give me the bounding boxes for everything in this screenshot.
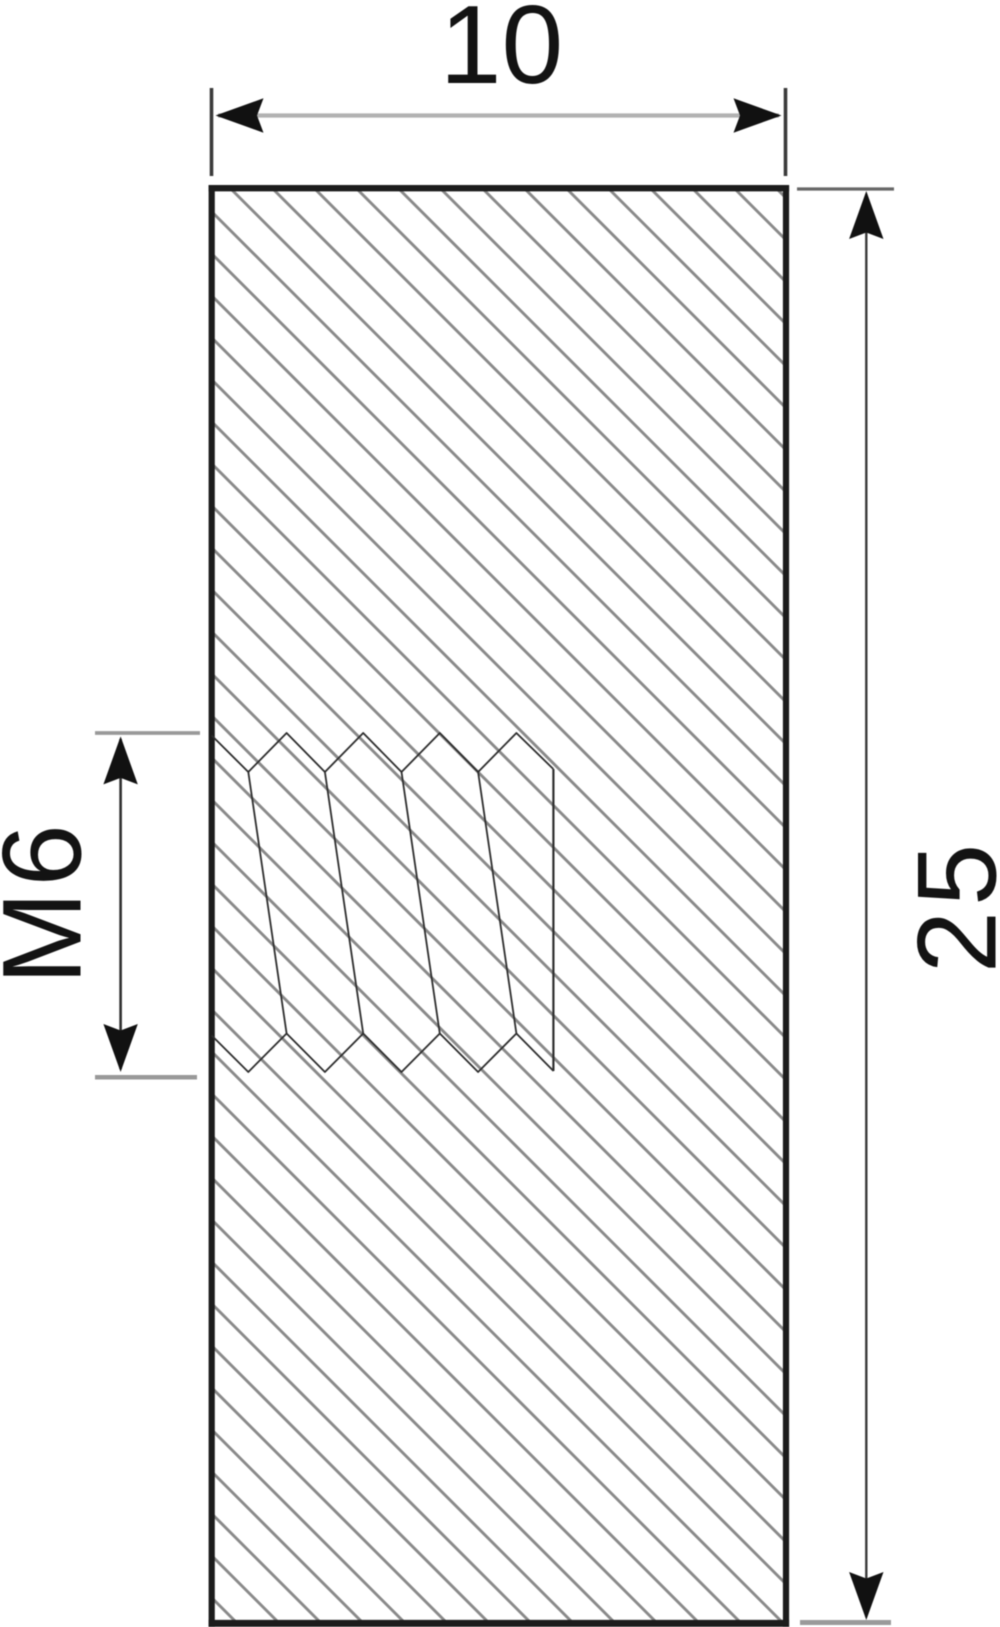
svg-text:M6: M6	[0, 819, 105, 985]
svg-text:25: 25	[895, 839, 1000, 974]
svg-text:10: 10	[440, 0, 563, 107]
